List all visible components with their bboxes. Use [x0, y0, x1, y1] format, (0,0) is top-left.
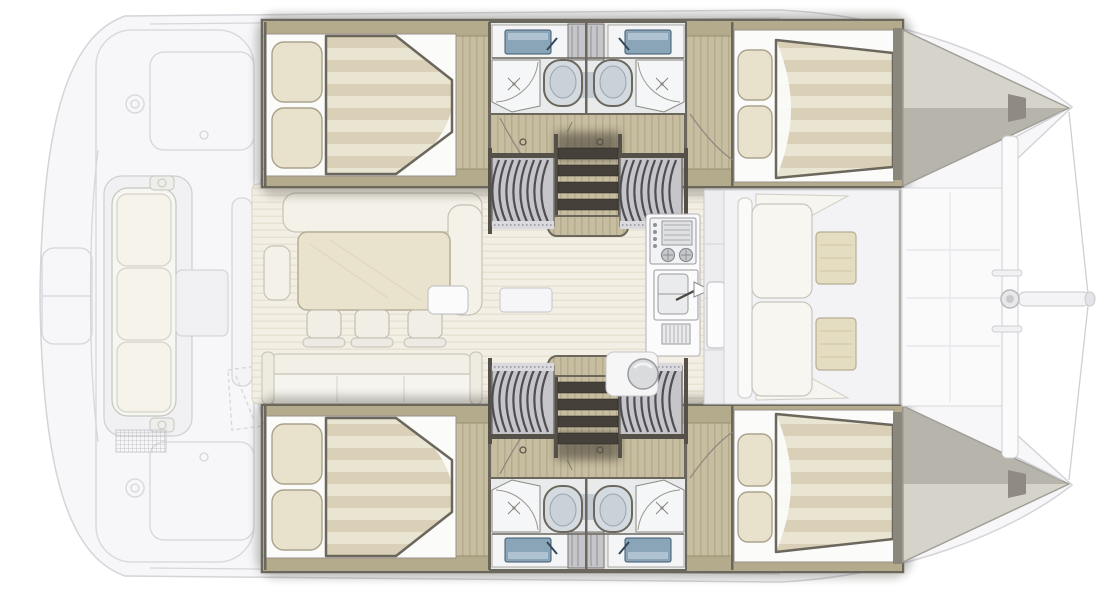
transom-vent	[116, 430, 166, 452]
catamaran-floorplan	[0, 0, 1120, 592]
cup-holder	[150, 176, 174, 190]
bow-rigging	[992, 112, 1095, 480]
seat-cushion	[752, 302, 812, 396]
forward-cockpit	[724, 190, 904, 404]
stool-seats	[307, 310, 442, 338]
saloon-cabinet	[428, 286, 468, 314]
saloon-locker	[500, 288, 552, 312]
forward-cockpit-door	[707, 282, 725, 348]
forestay-pin	[1006, 295, 1014, 303]
beam-cleat	[992, 270, 1022, 276]
foredeck	[902, 188, 1004, 406]
stool	[355, 310, 389, 338]
stool-base	[351, 338, 393, 347]
stove-knob	[653, 237, 657, 241]
dinette-table	[298, 232, 450, 310]
galley-stove	[650, 218, 696, 264]
floorplan-svg	[0, 0, 1120, 592]
beam-cleat	[992, 326, 1022, 332]
stool-base	[404, 338, 446, 347]
foredeck-panel	[902, 188, 1004, 406]
bowsprit-end	[1085, 292, 1095, 306]
stools	[303, 310, 446, 347]
cushion	[117, 194, 171, 266]
bench-cushions	[117, 194, 171, 412]
stove-knob	[653, 223, 657, 227]
cushion	[117, 342, 171, 412]
cushion	[117, 268, 171, 340]
seat-backrest	[738, 198, 752, 398]
seat-cushion	[752, 204, 812, 298]
cockpit-walkway	[232, 198, 252, 386]
settee-end-seat	[264, 246, 290, 300]
stove-knob	[653, 230, 657, 234]
stool-bases	[303, 338, 446, 347]
sofa-armrest	[262, 352, 274, 404]
aft-cockpit-table	[176, 270, 228, 336]
stove-knob	[653, 244, 657, 248]
stool	[307, 310, 341, 338]
bowsprit	[1018, 292, 1090, 306]
stool-base	[303, 338, 345, 347]
